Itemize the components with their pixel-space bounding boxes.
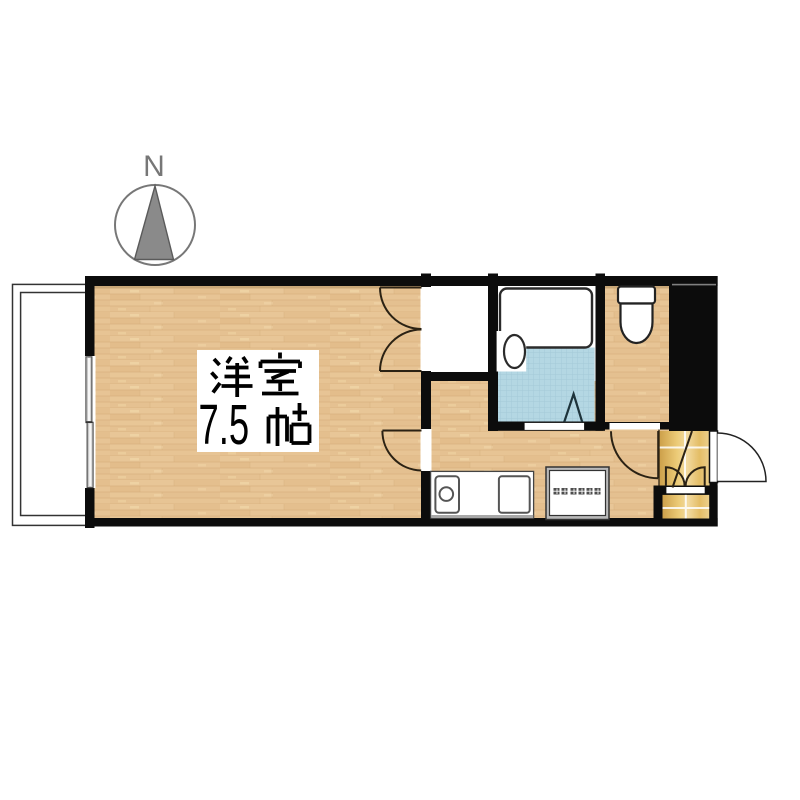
svg-text:N: N [143,150,165,183]
svg-text:7.5: 7.5 [199,394,250,457]
